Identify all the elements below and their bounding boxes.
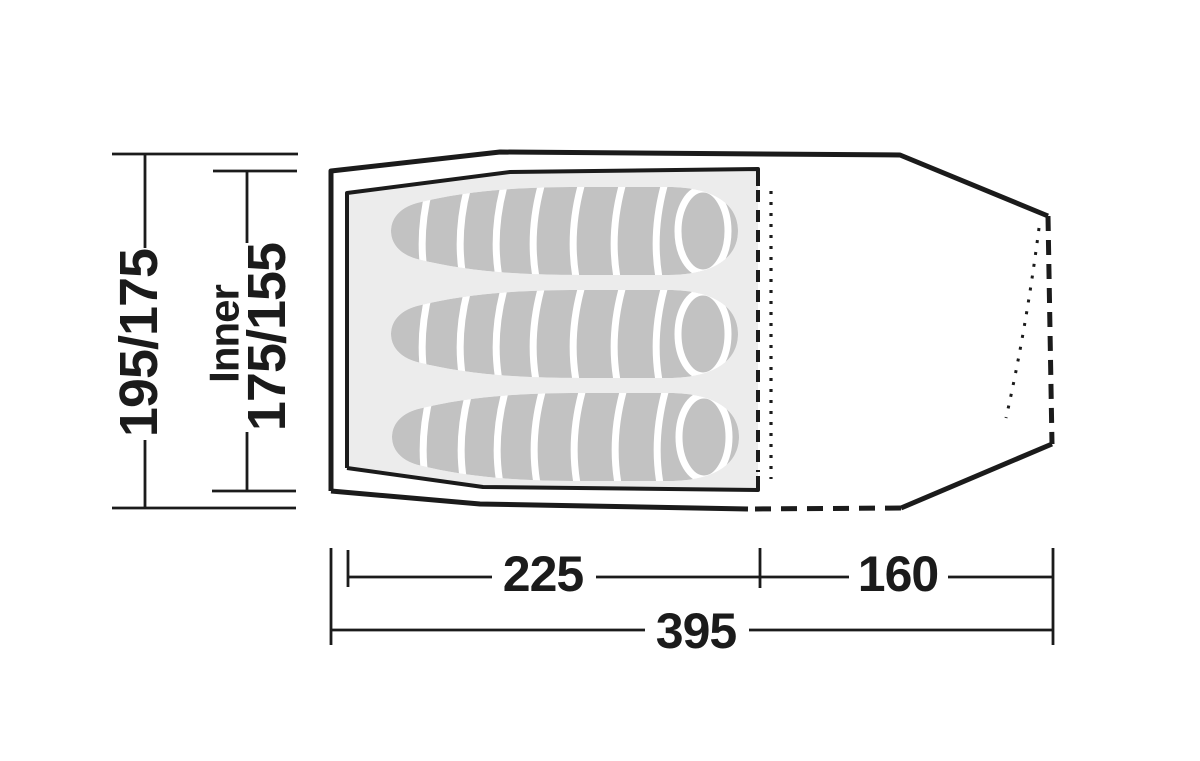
label-porch-width: 160 <box>858 546 938 602</box>
diagram-canvas: 195/175 Inner 175/155 225 160 395 <box>0 0 1200 761</box>
label-inner-width: 225 <box>503 546 584 602</box>
label-inner-length: 175/155 <box>237 243 297 431</box>
label-outer-length: 195/175 <box>109 249 169 437</box>
label-total-width: 395 <box>656 603 737 659</box>
tent-floorplan-diagram: 195/175 Inner 175/155 225 160 395 <box>0 0 1200 761</box>
sleeping-bags-group <box>391 179 739 489</box>
